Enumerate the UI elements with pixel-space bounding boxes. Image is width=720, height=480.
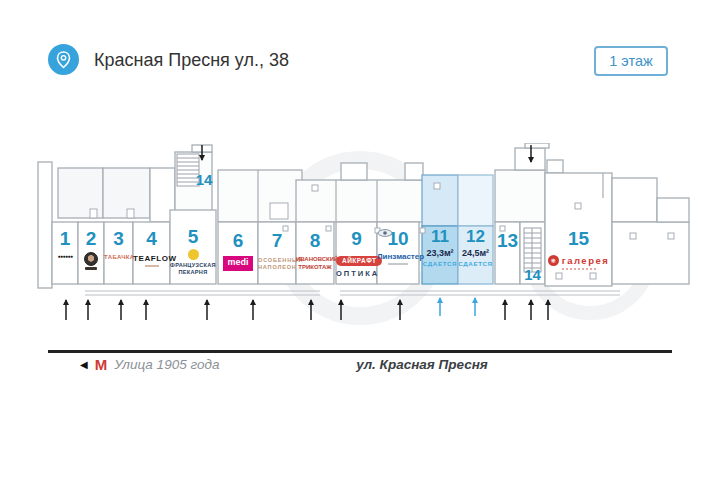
unit-8-tenant-line2: ТРИКОТАЖ bbox=[296, 263, 334, 271]
unit-2: 2 bbox=[78, 229, 104, 270]
unit-5: 5 ФРАНЦУЗСКАЯ ПЕКАРНЯ bbox=[170, 227, 216, 276]
unit-8-number: 8 bbox=[296, 231, 334, 251]
direction-arrow-icon: ◀ bbox=[80, 360, 88, 370]
unit-6-tenant: medi bbox=[223, 256, 252, 271]
unit-9-tenant: АЙКРАФТ bbox=[336, 256, 382, 267]
unit-8: 8 ИВАНОВСКИЙ ТРИКОТАЖ bbox=[296, 231, 334, 271]
unit-9-tenant-sub: ОПТИКА bbox=[336, 269, 377, 278]
unit-4-tenant: TEAFLOW bbox=[133, 254, 170, 263]
street-line bbox=[48, 350, 672, 353]
unit-13: 13 bbox=[495, 231, 520, 251]
unit-10: 10 Линзмастер bbox=[377, 229, 419, 265]
unit-14-bottom: 14 bbox=[520, 267, 545, 283]
unit-12-number: 12 bbox=[458, 228, 493, 246]
unit-5-tenant-line2: ПЕКАРНЯ bbox=[170, 269, 216, 276]
unit-3: 3 ТАБАЧКА bbox=[104, 229, 133, 260]
unit-1-tenant-logo-icon: ●●●●●● bbox=[52, 254, 78, 259]
unit-12-area: 24,5м² bbox=[458, 248, 493, 258]
street-name: ул. Красная Пресня bbox=[352, 357, 492, 372]
unit-11-number: 11 bbox=[422, 228, 458, 246]
unit-1-number: 1 bbox=[52, 229, 78, 249]
screen: Красная Пресня ул., 38 1 этаж bbox=[0, 0, 720, 480]
unit-7-number: 7 bbox=[258, 231, 296, 251]
unit-15-number: 15 bbox=[545, 229, 612, 249]
metro-station-name: Улица 1905 года bbox=[114, 357, 219, 372]
unit-7: 7 ОСОБЕННЫЙ НАПОЛЕОН bbox=[258, 231, 296, 272]
unit-11[interactable]: 11 23,3м² СДАЕТСЯ bbox=[422, 228, 458, 267]
unit-8-tenant-line1: ИВАНОВСКИЙ bbox=[296, 255, 334, 263]
unit-7-tenant-line1: ОСОБЕННЫЙ bbox=[258, 257, 296, 265]
unit-4-tenant-subtitle bbox=[145, 265, 159, 267]
unit-7-tenant-line2: НАПОЛЕОН bbox=[258, 264, 296, 272]
page-title: Красная Пресня ул., 38 bbox=[94, 50, 289, 71]
unit-11-area: 23,3м² bbox=[422, 248, 458, 258]
unit-2-number: 2 bbox=[78, 229, 104, 249]
unit-3-tenant: ТАБАЧКА bbox=[104, 254, 133, 260]
bakery-icon bbox=[188, 249, 199, 260]
unit-14-top-number: 14 bbox=[192, 172, 216, 188]
unit-15: 15 ❋ галерея bbox=[545, 229, 612, 270]
unit-13-number: 13 bbox=[495, 231, 520, 251]
unit-12[interactable]: 12 24,5м² СДАЕТСЯ bbox=[458, 228, 493, 267]
galereya-icon: ❋ bbox=[548, 255, 559, 266]
unit-3-number: 3 bbox=[104, 229, 133, 249]
unit-4: 4 TEAFLOW bbox=[133, 229, 170, 267]
unit-6-number: 6 bbox=[218, 231, 258, 251]
unit-14-bottom-number: 14 bbox=[520, 267, 545, 283]
unit-12-status: СДАЕТСЯ bbox=[458, 260, 493, 267]
unit-9-number: 9 bbox=[336, 229, 377, 249]
unit-15-tenant: галерея bbox=[562, 255, 610, 266]
unit-2-tenant-avatar-icon bbox=[78, 252, 104, 270]
unit-15-tenant-subtitle bbox=[562, 268, 596, 270]
unit-5-tenant-line1: ФРАНЦУЗСКАЯ bbox=[170, 262, 216, 269]
unit-9: 9 АЙКРАФТ ОПТИКА bbox=[336, 229, 377, 278]
unit-1: 1 ●●●●●● bbox=[52, 229, 78, 259]
unit-11-status: СДАЕТСЯ bbox=[422, 260, 458, 267]
unit-10-tenant-subtitle bbox=[388, 263, 408, 265]
floor-selector-badge[interactable]: 1 этаж bbox=[594, 46, 668, 76]
unit-5-number: 5 bbox=[170, 227, 216, 247]
unit-14-top: 14 bbox=[192, 172, 216, 188]
unit-6: 6 medi bbox=[218, 231, 258, 271]
unit-10-tenant: Линзмастер bbox=[377, 252, 419, 261]
location-pin-icon bbox=[48, 44, 79, 75]
unit-4-number: 4 bbox=[133, 229, 170, 249]
floor-plan: 1 ●●●●●● 2 3 ТАБАЧКА 4 TEAFLOW 5 ФРАНЦУЗ… bbox=[30, 143, 693, 335]
rent-entrance-arrows bbox=[440, 298, 475, 316]
metro-icon: М bbox=[95, 357, 108, 372]
